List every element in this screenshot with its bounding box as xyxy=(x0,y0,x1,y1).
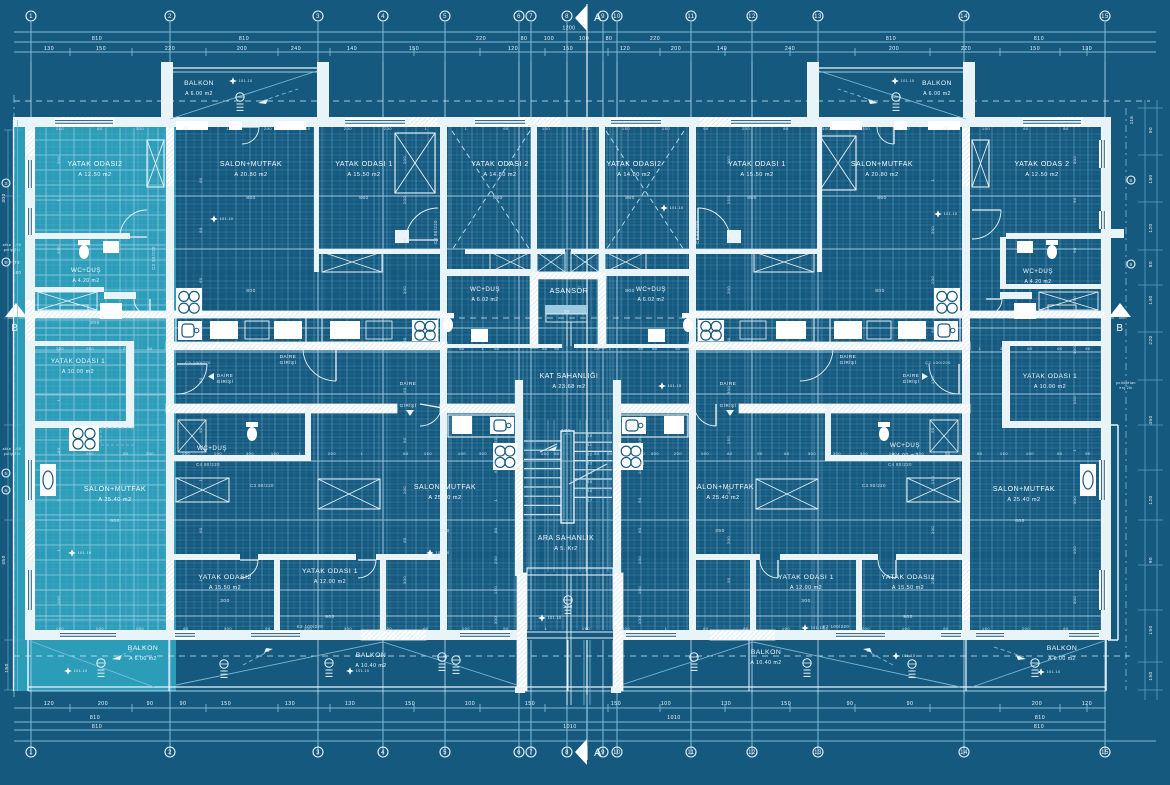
svg-text:enj.2kl: enj.2kl xyxy=(1119,386,1132,390)
svg-text:300: 300 xyxy=(220,598,230,604)
svg-text:200: 200 xyxy=(90,320,100,326)
svg-text:300: 300 xyxy=(402,286,407,294)
svg-text:120: 120 xyxy=(508,46,518,52)
svg-text:100: 100 xyxy=(726,486,731,494)
svg-text:300: 300 xyxy=(1,193,7,203)
svg-text:DAİRE: DAİRE xyxy=(840,353,857,359)
svg-text:90: 90 xyxy=(1148,557,1153,563)
svg-text:A 6.00 m2: A 6.00 m2 xyxy=(185,91,213,97)
svg-text:GİRİŞİ: GİRİŞİ xyxy=(217,378,234,384)
svg-text:A 15.50 m2: A 15.50 m2 xyxy=(209,585,241,591)
svg-text:300: 300 xyxy=(1000,346,1008,351)
svg-text:300: 300 xyxy=(402,576,407,584)
svg-text:240: 240 xyxy=(291,46,301,52)
svg-text:120: 120 xyxy=(1148,495,1153,504)
svg-text:150: 150 xyxy=(96,46,106,52)
svg-text:150: 150 xyxy=(982,626,990,631)
svg-text:300: 300 xyxy=(822,126,830,131)
svg-text:A 12.00 m2: A 12.00 m2 xyxy=(790,585,822,591)
svg-text:220: 220 xyxy=(1148,335,1153,344)
svg-text:12: 12 xyxy=(588,452,593,456)
svg-text:100: 100 xyxy=(465,701,475,707)
svg-text:80: 80 xyxy=(1148,261,1153,267)
svg-text:101.10: 101.10 xyxy=(356,669,370,673)
svg-text:10: 10 xyxy=(613,750,621,756)
svg-text:130: 130 xyxy=(345,701,355,707)
svg-text:60: 60 xyxy=(594,346,600,351)
svg-text:300: 300 xyxy=(637,436,642,444)
svg-text:A 12.50 m2: A 12.50 m2 xyxy=(1025,172,1058,178)
svg-text:1: 1 xyxy=(704,346,707,351)
svg-text:100: 100 xyxy=(544,36,554,42)
svg-text:SALON+MUTFAK: SALON+MUTFAK xyxy=(84,486,146,493)
svg-text:80: 80 xyxy=(606,36,613,42)
svg-text:150: 150 xyxy=(783,346,791,351)
svg-text:200: 200 xyxy=(98,701,108,707)
svg-text:60: 60 xyxy=(423,626,429,631)
svg-text:200: 200 xyxy=(742,126,750,131)
svg-text:300: 300 xyxy=(344,626,352,631)
svg-text:200: 200 xyxy=(930,276,935,284)
svg-text:200: 200 xyxy=(344,126,352,131)
svg-text:150: 150 xyxy=(424,451,432,456)
svg-text:100: 100 xyxy=(96,626,104,631)
svg-text:A 6.02 m2: A 6.02 m2 xyxy=(637,297,664,303)
svg-text:60: 60 xyxy=(726,337,731,343)
svg-text:800: 800 xyxy=(246,288,256,294)
svg-text:A: A xyxy=(594,12,602,24)
svg-text:240: 240 xyxy=(785,46,795,52)
svg-text:90: 90 xyxy=(402,337,407,343)
svg-text:WC+DUŞ: WC+DUŞ xyxy=(470,286,500,293)
svg-text:300: 300 xyxy=(726,386,731,394)
svg-text:A 25.40 m2: A 25.40 m2 xyxy=(1007,497,1040,503)
svg-text:A 20.80 m2: A 20.80 m2 xyxy=(865,172,898,178)
svg-text:DAİRE: DAİRE xyxy=(280,353,297,359)
svg-text:300: 300 xyxy=(860,451,868,456)
svg-text:A 14.80 m2: A 14.80 m2 xyxy=(617,172,650,178)
svg-text:YATAK ODASI 2: YATAK ODASI 2 xyxy=(471,161,528,168)
svg-text:90: 90 xyxy=(847,701,854,707)
svg-text:80: 80 xyxy=(97,126,103,131)
svg-text:350: 350 xyxy=(440,528,450,534)
svg-text:200: 200 xyxy=(563,604,573,610)
svg-text:poliüretan: poliüretan xyxy=(1116,381,1136,385)
svg-text:300: 300 xyxy=(493,616,498,624)
svg-text:90: 90 xyxy=(943,126,949,131)
svg-text:101.10: 101.10 xyxy=(1047,670,1061,674)
svg-text:300: 300 xyxy=(246,346,254,351)
svg-text:60: 60 xyxy=(594,451,600,456)
svg-text:15: 15 xyxy=(1101,750,1109,756)
svg-text:80: 80 xyxy=(564,309,570,314)
svg-text:KAT SAHANLIĞI: KAT SAHANLIĞI xyxy=(540,371,599,380)
svg-text:3: 3 xyxy=(4,181,7,186)
svg-text:300: 300 xyxy=(808,451,816,456)
svg-text:80: 80 xyxy=(1023,126,1029,131)
svg-text:200: 200 xyxy=(86,346,94,351)
svg-text:8: 8 xyxy=(565,750,569,756)
svg-text:WC+DUŞ: WC+DUŞ xyxy=(1023,268,1053,275)
svg-text:150: 150 xyxy=(1072,396,1077,404)
svg-text:SALON+MUTFAK: SALON+MUTFAK xyxy=(220,161,282,168)
svg-text:1: 1 xyxy=(609,346,612,351)
svg-text:6: 6 xyxy=(517,750,521,756)
svg-text:12: 12 xyxy=(748,750,756,756)
svg-text:90: 90 xyxy=(147,701,154,707)
svg-text:GİRİŞİ: GİRİŞİ xyxy=(720,402,737,408)
svg-text:A 6.00 m2: A 6.00 m2 xyxy=(1048,656,1076,662)
svg-text:YATAK ODAS 2: YATAK ODAS 2 xyxy=(1014,161,1069,168)
svg-text:1: 1 xyxy=(198,478,203,481)
svg-text:WC+DUŞ: WC+DUŞ xyxy=(890,442,920,449)
svg-text:200: 200 xyxy=(402,486,407,494)
svg-text:80: 80 xyxy=(123,346,129,351)
svg-text:60: 60 xyxy=(637,527,642,533)
svg-text:150: 150 xyxy=(726,196,731,204)
svg-text:1: 1 xyxy=(930,178,935,181)
svg-text:SALON+MUTFAK: SALON+MUTFAK xyxy=(993,486,1055,493)
svg-text:90: 90 xyxy=(272,346,278,351)
svg-text:90: 90 xyxy=(180,701,187,707)
svg-text:810: 810 xyxy=(1034,36,1044,42)
svg-text:A 15.50 m2: A 15.50 m2 xyxy=(347,172,380,178)
svg-text:12: 12 xyxy=(748,14,756,20)
svg-text:810: 810 xyxy=(886,36,896,42)
svg-text:90: 90 xyxy=(638,346,644,351)
svg-text:140: 140 xyxy=(717,46,727,52)
svg-text:1: 1 xyxy=(227,126,230,131)
svg-text:60: 60 xyxy=(305,126,311,131)
svg-text:60: 60 xyxy=(359,346,365,351)
svg-text:90: 90 xyxy=(907,701,914,707)
svg-text:100: 100 xyxy=(86,451,94,456)
svg-text:11: 11 xyxy=(687,750,694,756)
svg-text:60: 60 xyxy=(637,497,642,503)
svg-text:80: 80 xyxy=(123,451,129,456)
svg-text:200: 200 xyxy=(671,46,681,52)
svg-text:A 6.02 m2: A 6.02 m2 xyxy=(471,297,498,303)
svg-text:115: 115 xyxy=(1129,116,1134,125)
svg-text:140: 140 xyxy=(1148,295,1153,304)
svg-text:150: 150 xyxy=(56,626,64,631)
svg-text:A: A xyxy=(594,747,602,759)
svg-text:6: 6 xyxy=(4,488,7,493)
svg-text:300: 300 xyxy=(862,126,870,131)
svg-text:100: 100 xyxy=(462,626,470,631)
svg-text:90: 90 xyxy=(1085,451,1091,456)
svg-text:5: 5 xyxy=(4,471,7,476)
svg-text:300: 300 xyxy=(1072,496,1077,504)
svg-text:GİRİŞİ: GİRİŞİ xyxy=(840,359,857,365)
svg-text:300: 300 xyxy=(801,598,811,604)
svg-text:DAİRE: DAİRE xyxy=(217,372,234,378)
svg-text:100: 100 xyxy=(637,616,642,624)
svg-text:6: 6 xyxy=(517,14,521,20)
svg-text:60: 60 xyxy=(823,626,829,631)
svg-text:810: 810 xyxy=(90,715,100,721)
svg-text:Ç2 100/220: Ç2 100/220 xyxy=(185,360,211,365)
svg-text:810: 810 xyxy=(239,36,249,42)
svg-text:YATAK ODASI 1: YATAK ODASI 1 xyxy=(728,161,785,168)
svg-text:YATAK ODASI2: YATAK ODASI2 xyxy=(881,574,935,581)
svg-text:350: 350 xyxy=(715,528,725,534)
svg-text:900: 900 xyxy=(325,614,335,620)
svg-text:300: 300 xyxy=(930,226,935,234)
svg-text:80: 80 xyxy=(1063,126,1069,131)
svg-text:100: 100 xyxy=(916,451,924,456)
svg-text:13: 13 xyxy=(814,14,822,20)
svg-text:A 6.00 m2: A 6.00 m2 xyxy=(923,91,951,97)
svg-text:860: 860 xyxy=(246,195,256,201)
svg-text:300: 300 xyxy=(146,451,154,456)
svg-text:13: 13 xyxy=(588,462,593,466)
svg-text:A 10.00 m2: A 10.00 m2 xyxy=(1034,384,1066,390)
svg-text:90: 90 xyxy=(703,126,709,131)
svg-text:90: 90 xyxy=(402,437,407,443)
svg-text:810: 810 xyxy=(1034,724,1044,730)
svg-text:101.10: 101.10 xyxy=(902,654,916,658)
svg-text:200: 200 xyxy=(622,626,630,631)
svg-text:150: 150 xyxy=(493,586,498,594)
svg-text:60: 60 xyxy=(198,277,203,283)
svg-text:1: 1 xyxy=(665,626,668,631)
svg-text:DAİRE: DAİRE xyxy=(720,380,737,386)
svg-text:A 5. Kr2: A 5. Kr2 xyxy=(554,546,577,552)
svg-text:200: 200 xyxy=(384,626,392,631)
svg-text:220: 220 xyxy=(650,36,660,42)
svg-text:100: 100 xyxy=(458,451,466,456)
svg-text:100: 100 xyxy=(402,156,407,164)
svg-text:BALKON: BALKON xyxy=(356,652,387,659)
svg-text:60: 60 xyxy=(784,451,790,456)
svg-text:200: 200 xyxy=(1022,626,1030,631)
svg-text:220: 220 xyxy=(165,46,175,52)
svg-text:1: 1 xyxy=(29,750,33,756)
svg-text:200: 200 xyxy=(264,126,272,131)
svg-text:A 6.00 m2: A 6.00 m2 xyxy=(129,656,157,662)
svg-text:100: 100 xyxy=(637,586,642,594)
svg-text:100: 100 xyxy=(1026,451,1034,456)
svg-text:1: 1 xyxy=(493,498,498,501)
svg-text:80: 80 xyxy=(425,346,431,351)
svg-text:800: 800 xyxy=(875,288,885,294)
svg-text:200: 200 xyxy=(930,576,935,584)
svg-text:4: 4 xyxy=(381,14,385,20)
svg-text:BALKON: BALKON xyxy=(922,80,952,87)
svg-text:8: 8 xyxy=(565,14,569,20)
svg-text:220: 220 xyxy=(476,36,486,42)
svg-text:80: 80 xyxy=(783,126,789,131)
svg-text:80: 80 xyxy=(1063,626,1069,631)
svg-text:90: 90 xyxy=(1085,346,1091,351)
svg-text:11: 11 xyxy=(687,14,694,20)
svg-text:80: 80 xyxy=(56,447,61,453)
svg-text:300: 300 xyxy=(1072,596,1077,604)
svg-text:BALKON: BALKON xyxy=(751,649,782,656)
svg-text:C3 90/220: C3 90/220 xyxy=(695,220,700,244)
svg-text:80: 80 xyxy=(198,227,203,233)
svg-text:90: 90 xyxy=(675,346,681,351)
svg-text:100: 100 xyxy=(56,596,61,604)
svg-text:200: 200 xyxy=(493,556,498,564)
svg-text:3: 3 xyxy=(316,14,320,20)
svg-text:300: 300 xyxy=(246,451,254,456)
svg-text:150: 150 xyxy=(1148,625,1153,634)
svg-text:70: 70 xyxy=(14,260,20,265)
svg-text:C3 90/220: C3 90/220 xyxy=(151,246,156,270)
svg-text:1: 1 xyxy=(425,126,428,131)
svg-text:60: 60 xyxy=(945,346,951,351)
svg-text:90: 90 xyxy=(1148,127,1153,133)
svg-text:130: 130 xyxy=(44,46,54,52)
svg-text:200: 200 xyxy=(902,126,910,131)
svg-text:150: 150 xyxy=(622,126,630,131)
svg-text:150: 150 xyxy=(563,46,573,52)
svg-text:300: 300 xyxy=(136,126,144,131)
svg-text:90: 90 xyxy=(1072,247,1077,253)
svg-text:1: 1 xyxy=(979,346,982,351)
svg-text:YATAK ODASI2: YATAK ODASI2 xyxy=(67,161,122,168)
svg-text:80: 80 xyxy=(727,451,733,456)
svg-text:150: 150 xyxy=(1000,451,1008,456)
svg-text:120: 120 xyxy=(44,701,54,707)
svg-text:A 10.40 m2: A 10.40 m2 xyxy=(750,660,781,666)
svg-text:A 10.00 m2: A 10.00 m2 xyxy=(62,369,94,375)
svg-text:2: 2 xyxy=(168,750,172,756)
svg-text:120: 120 xyxy=(1148,223,1153,232)
svg-text:SALON+MUTFAK: SALON+MUTFAK xyxy=(414,484,476,491)
svg-text:60: 60 xyxy=(861,346,867,351)
svg-text:150: 150 xyxy=(525,701,535,707)
svg-text:1010: 1010 xyxy=(667,715,681,721)
svg-text:101.10: 101.10 xyxy=(74,669,88,673)
svg-text:860: 860 xyxy=(877,195,887,201)
svg-text:860: 860 xyxy=(493,195,503,201)
svg-text:11: 11 xyxy=(588,443,593,447)
svg-text:SALON+MUTFAK: SALON+MUTFAK xyxy=(851,161,913,168)
svg-text:60: 60 xyxy=(494,346,500,351)
svg-text:150: 150 xyxy=(1030,46,1040,52)
svg-text:100: 100 xyxy=(214,451,222,456)
svg-text:150: 150 xyxy=(930,376,935,384)
svg-text:60: 60 xyxy=(215,346,221,351)
svg-text:15: 15 xyxy=(588,480,593,484)
svg-text:60: 60 xyxy=(402,237,407,243)
svg-text:GİRİŞİ: GİRİŞİ xyxy=(400,402,417,408)
svg-text:130: 130 xyxy=(1082,46,1092,52)
svg-text:3: 3 xyxy=(316,750,320,756)
svg-text:GİRİŞİ: GİRİŞİ xyxy=(903,378,920,384)
svg-text:WC+DUŞ: WC+DUŞ xyxy=(636,286,666,293)
svg-text:150: 150 xyxy=(582,626,590,631)
svg-text:90: 90 xyxy=(726,577,731,583)
svg-text:1: 1 xyxy=(482,346,485,351)
svg-text:101.10: 101.10 xyxy=(944,212,958,216)
svg-text:1: 1 xyxy=(545,626,548,631)
svg-text:4: 4 xyxy=(381,750,385,756)
svg-text:A 12.00 m2: A 12.00 m2 xyxy=(314,579,346,585)
svg-text:200: 200 xyxy=(726,536,731,544)
svg-text:101.10: 101.10 xyxy=(436,551,450,555)
svg-text:800: 800 xyxy=(110,518,120,524)
svg-text:150: 150 xyxy=(889,346,897,351)
svg-text:90: 90 xyxy=(1072,197,1077,203)
svg-text:ARA SAHANLIK: ARA SAHANLIK xyxy=(538,535,595,542)
svg-text:5: 5 xyxy=(443,750,447,756)
svg-text:810: 810 xyxy=(92,724,102,730)
svg-text:1: 1 xyxy=(56,548,61,551)
svg-text:100: 100 xyxy=(561,428,571,434)
svg-text:300: 300 xyxy=(833,451,841,456)
svg-text:300: 300 xyxy=(56,246,61,254)
svg-text:150: 150 xyxy=(405,701,415,707)
svg-text:1: 1 xyxy=(1072,448,1077,451)
svg-text:YATAK ODASI 1: YATAK ODASI 1 xyxy=(1023,373,1078,380)
svg-text:90: 90 xyxy=(503,126,509,131)
svg-text:1: 1 xyxy=(56,198,61,201)
svg-text:450: 450 xyxy=(1148,415,1153,424)
svg-text:WC+DUŞ: WC+DUŞ xyxy=(197,445,227,452)
svg-text:101.10: 101.10 xyxy=(220,217,234,221)
svg-text:Ç2 100/220: Ç2 100/220 xyxy=(925,360,951,365)
svg-text:1: 1 xyxy=(198,578,203,581)
svg-text:860: 860 xyxy=(359,195,369,201)
svg-text:90: 90 xyxy=(147,346,153,351)
svg-text:200: 200 xyxy=(582,126,590,131)
svg-text:60: 60 xyxy=(198,527,203,533)
svg-text:860: 860 xyxy=(747,195,757,201)
svg-text:200: 200 xyxy=(889,46,899,52)
svg-text:ASANSÖR: ASANSÖR xyxy=(550,286,589,295)
svg-text:1: 1 xyxy=(361,451,364,456)
svg-text:BALKON: BALKON xyxy=(184,80,214,87)
svg-text:450: 450 xyxy=(1,555,7,565)
svg-text:15: 15 xyxy=(1101,14,1109,20)
svg-text:1: 1 xyxy=(29,14,33,20)
svg-text:WC+DUŞ: WC+DUŞ xyxy=(71,267,101,274)
svg-text:DAİRE: DAİRE xyxy=(903,372,920,378)
svg-text:80: 80 xyxy=(743,626,749,631)
svg-text:150: 150 xyxy=(271,451,279,456)
svg-text:100: 100 xyxy=(542,126,550,131)
svg-text:101.10: 101.10 xyxy=(78,551,92,555)
svg-text:300: 300 xyxy=(651,451,659,456)
svg-text:80: 80 xyxy=(493,527,498,533)
svg-text:BALKON: BALKON xyxy=(1047,645,1078,652)
svg-text:60: 60 xyxy=(493,467,498,473)
svg-text:101.10: 101.10 xyxy=(239,79,253,83)
svg-text:2: 2 xyxy=(4,260,7,265)
svg-text:130: 130 xyxy=(721,701,731,707)
svg-text:120: 120 xyxy=(620,46,630,52)
svg-text:60: 60 xyxy=(402,537,407,543)
svg-text:60: 60 xyxy=(402,387,407,393)
svg-text:60: 60 xyxy=(1027,346,1033,351)
svg-text:A 23.68 m2: A 23.68 m2 xyxy=(552,384,585,390)
svg-text:150: 150 xyxy=(221,701,231,707)
svg-text:60: 60 xyxy=(977,451,983,456)
svg-text:150: 150 xyxy=(541,451,549,456)
svg-text:90: 90 xyxy=(265,626,271,631)
svg-text:100: 100 xyxy=(902,626,910,631)
svg-text:80: 80 xyxy=(703,626,709,631)
svg-text:200: 200 xyxy=(862,626,870,631)
svg-text:A 20.80 m2: A 20.80 m2 xyxy=(234,172,267,178)
svg-text:200: 200 xyxy=(637,451,645,456)
svg-text:1010: 1010 xyxy=(563,724,577,730)
svg-text:100: 100 xyxy=(1072,346,1077,354)
